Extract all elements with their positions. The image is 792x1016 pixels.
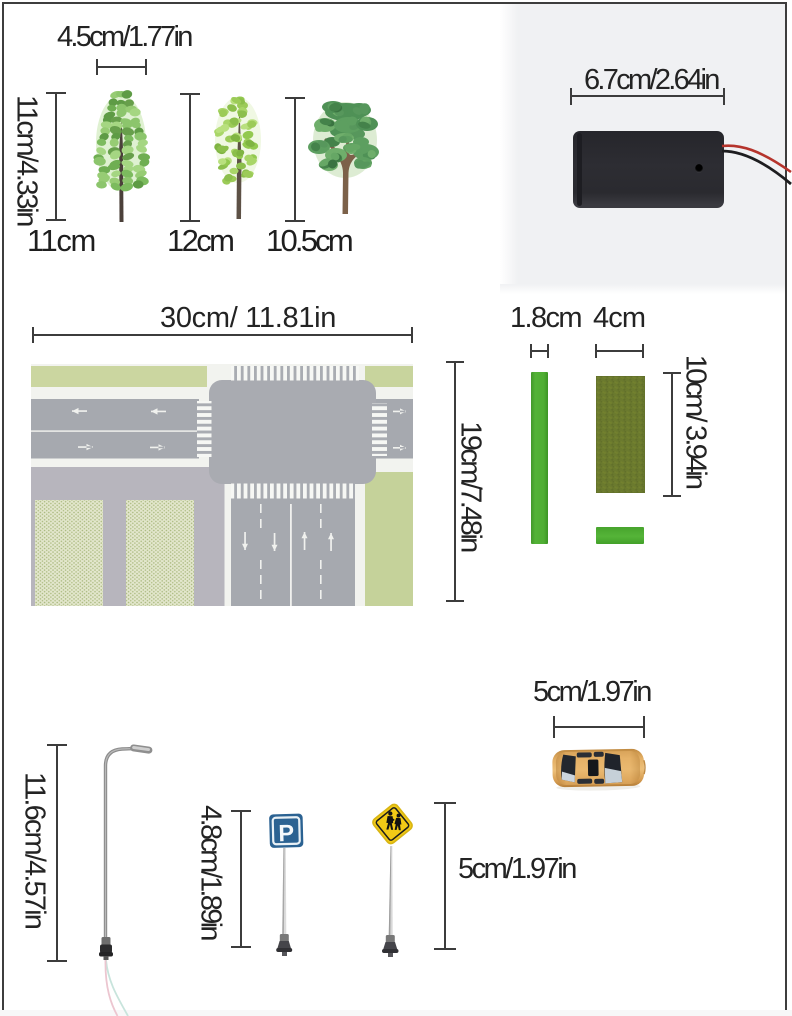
svg-text:P: P <box>278 820 294 846</box>
